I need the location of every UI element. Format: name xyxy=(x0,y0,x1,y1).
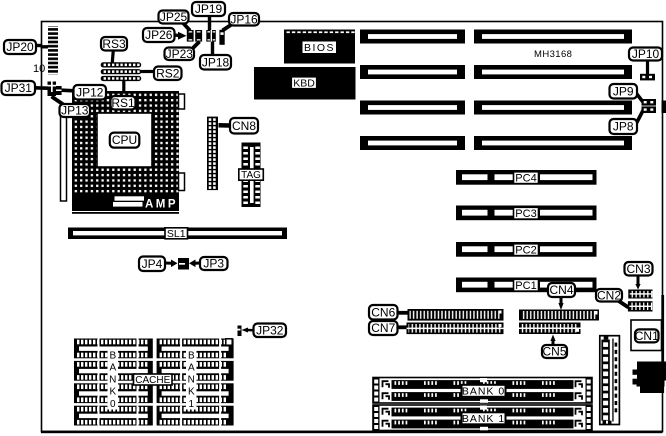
svg-text:A: A xyxy=(188,363,195,374)
svg-text:PC3: PC3 xyxy=(515,208,536,220)
svg-text:K: K xyxy=(188,387,195,398)
svg-text:JP23: JP23 xyxy=(166,47,194,61)
svg-text:JP8: JP8 xyxy=(613,120,634,134)
svg-text:AMP: AMP xyxy=(145,199,178,211)
svg-text:JP31: JP31 xyxy=(5,81,33,95)
svg-text:RS3: RS3 xyxy=(102,37,126,51)
svg-text:PC1: PC1 xyxy=(515,280,536,292)
svg-text:CN3: CN3 xyxy=(626,262,650,276)
svg-text:JP9: JP9 xyxy=(613,84,634,98)
svg-text:JP16: JP16 xyxy=(230,12,258,26)
svg-text:CN7: CN7 xyxy=(371,321,395,335)
svg-text:RS1: RS1 xyxy=(111,96,135,110)
svg-text:JP25: JP25 xyxy=(160,10,188,24)
svg-text:JP32: JP32 xyxy=(256,323,284,337)
svg-text:0: 0 xyxy=(110,399,116,410)
svg-text:CN1: CN1 xyxy=(635,329,659,343)
svg-text:1: 1 xyxy=(189,399,195,410)
svg-text:CN6: CN6 xyxy=(371,305,395,319)
svg-text:PC2: PC2 xyxy=(515,244,536,256)
svg-text:SL1: SL1 xyxy=(167,228,186,240)
svg-text:PC4: PC4 xyxy=(515,172,536,184)
svg-text:CN4: CN4 xyxy=(549,283,573,297)
svg-text:JP12: JP12 xyxy=(76,85,104,99)
svg-text:N: N xyxy=(109,375,116,386)
svg-text:JP4: JP4 xyxy=(142,257,163,271)
svg-text:JP18: JP18 xyxy=(202,55,230,69)
svg-text:BANK 0: BANK 0 xyxy=(462,385,505,397)
svg-text:RS2: RS2 xyxy=(156,66,180,80)
svg-text:CN5: CN5 xyxy=(542,345,566,359)
svg-text:JP19: JP19 xyxy=(195,2,223,16)
svg-text:CN8: CN8 xyxy=(232,119,256,133)
svg-text:BIOS: BIOS xyxy=(304,42,335,54)
svg-text:JP3: JP3 xyxy=(203,257,224,271)
svg-text:JP13: JP13 xyxy=(61,104,89,118)
svg-text:A: A xyxy=(109,363,116,374)
svg-text:10: 10 xyxy=(33,63,45,75)
svg-text:CN2: CN2 xyxy=(597,288,621,302)
svg-text:JP20: JP20 xyxy=(6,40,34,54)
svg-text:B: B xyxy=(109,350,116,361)
svg-text:MH3168: MH3168 xyxy=(534,49,572,60)
svg-text:KBD: KBD xyxy=(293,78,315,90)
svg-text:N: N xyxy=(188,375,195,386)
svg-text:K: K xyxy=(109,387,116,398)
svg-text:CPU: CPU xyxy=(112,133,137,147)
svg-text:B: B xyxy=(188,350,195,361)
svg-text:JP10: JP10 xyxy=(632,47,660,61)
svg-text:JP26: JP26 xyxy=(145,28,173,42)
svg-text:CACHE: CACHE xyxy=(135,375,170,386)
svg-text:BANK 1: BANK 1 xyxy=(462,413,505,425)
svg-text:TAG: TAG xyxy=(241,170,261,181)
